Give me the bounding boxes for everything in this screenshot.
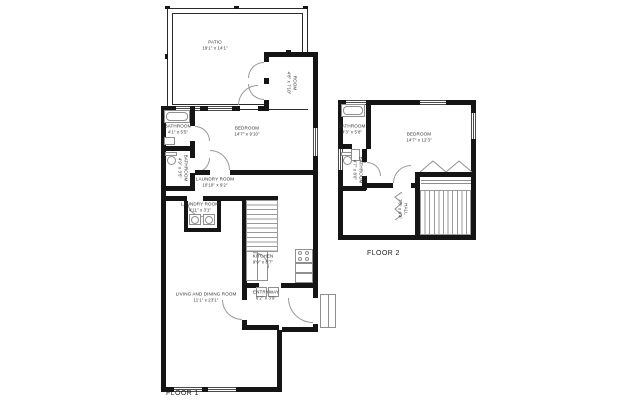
wall-segment xyxy=(281,283,313,288)
room-label-bathroom: BATHROOM 4'1" x 5'5" xyxy=(165,123,192,134)
room-dims: 4'7" x 8'6" xyxy=(352,157,358,184)
room-name: BEDROOM xyxy=(406,131,431,137)
wall-segment xyxy=(338,235,476,240)
room-dims: 4'3" x 5'8" xyxy=(339,129,366,135)
stove-burner xyxy=(298,251,302,255)
room-dims: 14'7" x 12'3" xyxy=(406,137,431,143)
room-label-side-room: ROOM 4'8" x 7'10" xyxy=(286,72,297,95)
closet-bifold-doors xyxy=(420,160,472,172)
patio-corner-tick xyxy=(165,54,168,59)
room-dims: 7'8" x 6'4" xyxy=(397,199,403,219)
room-dims: 14'7" x 9'10" xyxy=(234,131,259,137)
room-dims: 6'2" x 3'9" xyxy=(253,295,279,301)
room-label-living-dining: LIVING AND DINING ROOM 11'1" x 23'1" xyxy=(176,291,237,302)
room-dims: 4'1" x 5'5" xyxy=(165,129,192,135)
wall-segment xyxy=(338,144,352,149)
stove-burner xyxy=(305,251,309,255)
wall-segment xyxy=(366,100,371,149)
room-name: LAUNDRY ROOM xyxy=(181,201,219,207)
washer-drum xyxy=(191,216,199,224)
door-arc xyxy=(210,150,230,170)
room-dims: 10'10" x 9'2" xyxy=(196,182,234,188)
wall-segment xyxy=(264,52,318,57)
sink-vanity xyxy=(164,137,175,145)
wall-segment xyxy=(230,170,318,175)
room-name: BATHROOM xyxy=(165,123,192,129)
wall-segment xyxy=(277,330,282,392)
room-label-bedroom: BEDROOM 14'7" x 12'3" xyxy=(406,131,431,142)
wall-segment xyxy=(236,387,282,392)
dryer-drum xyxy=(205,216,213,224)
room-name: BEDROOM xyxy=(234,125,259,131)
stove-burner xyxy=(305,257,309,261)
wall-segment xyxy=(471,100,476,113)
room-dims: 11'1" x 23'1" xyxy=(176,297,237,303)
wall-segment xyxy=(184,228,221,232)
stairs xyxy=(420,190,471,235)
door-arc xyxy=(393,165,411,183)
floor1-caption: FLOOR 1 xyxy=(166,390,199,397)
window xyxy=(313,128,318,156)
room-dims: 4'11" x 3'1" xyxy=(181,207,219,213)
room-label-kitchen: KITCHEN 9'9" x 8'7" xyxy=(253,253,274,264)
wall-segment xyxy=(200,106,208,111)
stairs xyxy=(246,200,278,252)
front-door-arc xyxy=(288,298,313,323)
room-name: KITCHEN xyxy=(253,253,274,259)
room-label-bedroom: BEDROOM 14'7" x 9'10" xyxy=(234,125,259,136)
floor2-caption: FLOOR 2 xyxy=(367,250,400,257)
stove-burner xyxy=(298,257,302,261)
stoop-step-line xyxy=(328,294,329,328)
window xyxy=(420,100,446,105)
window xyxy=(208,106,232,111)
wall-segment xyxy=(195,170,210,175)
room-name: BATHROOM xyxy=(339,123,366,129)
toilet-bowl xyxy=(167,156,176,165)
wall-segment xyxy=(366,100,420,105)
door-arc xyxy=(367,162,381,176)
room-name: ENTRYWAY xyxy=(253,289,279,295)
bathtub-basin xyxy=(166,112,188,121)
wall-segment xyxy=(264,52,269,62)
closet-shelf-line xyxy=(421,183,471,184)
wall-segment xyxy=(232,106,240,111)
wall-segment xyxy=(313,156,318,298)
room-name: BATHROOM xyxy=(183,155,189,182)
patio-corner-tick xyxy=(165,6,170,9)
wall-segment xyxy=(282,327,318,332)
patio-corner-tick xyxy=(303,6,308,9)
room-dims: 9'9" x 8'7" xyxy=(253,259,274,265)
room-name: BATHROOM xyxy=(358,157,364,184)
room-label-patio: PATIO 19'1" x 14'1" xyxy=(202,39,227,50)
wall-segment xyxy=(242,325,279,330)
wall-segment xyxy=(338,170,343,240)
wall-segment xyxy=(264,78,269,84)
wall-segment xyxy=(161,186,195,191)
wall-segment xyxy=(419,172,476,177)
floorplan-canvas: PATIO 19'1" x 14'1" ROOM 4'8" x 7'10" BA… xyxy=(0,0,640,412)
room-label-bathroom: BATHROOM 4'3" x 5'8" xyxy=(339,123,366,134)
bathtub-basin xyxy=(343,106,363,115)
room-name: HALL xyxy=(403,199,409,219)
room-dims: 4'9" x 3'5" xyxy=(177,155,183,182)
wall-segment xyxy=(258,106,269,111)
door-arc xyxy=(195,126,210,141)
room-label-laundry-room: LAUNDRY ROOM 10'10" x 9'2" xyxy=(196,176,234,187)
wall-segment xyxy=(366,183,393,188)
room-name: LIVING AND DINING ROOM xyxy=(176,291,237,297)
room-dims: 19'1" x 14'1" xyxy=(202,45,227,51)
room-label-hall: HALL 7'8" x 6'4" xyxy=(397,199,408,219)
refrigerator xyxy=(295,273,313,283)
wall-segment xyxy=(313,52,318,128)
wall-segment xyxy=(471,139,476,240)
room-label-laundry-room-2: LAUNDRY ROOM 4'11" x 3'1" xyxy=(181,201,219,212)
patio-corner-tick xyxy=(234,6,239,9)
closet-shelf-line xyxy=(421,180,471,181)
wall-segment xyxy=(161,146,195,151)
window xyxy=(471,113,476,139)
room-label-entryway: ENTRYWAY 6'2" x 3'9" xyxy=(253,289,279,300)
room-name: ROOM xyxy=(292,72,298,95)
room-label-bathroom2: BATHROOM 4'9" x 3'5" xyxy=(177,155,188,182)
kitchen-appliance xyxy=(295,263,313,273)
patio-corner-tick xyxy=(286,50,291,53)
wall-segment xyxy=(338,186,366,191)
window xyxy=(208,387,236,392)
room-name: LAUNDRY ROOM xyxy=(196,176,234,182)
room-dims: 4'8" x 7'10" xyxy=(286,72,292,95)
room-label-bathroom2: BATHROOM 4'7" x 8'6" xyxy=(352,157,363,184)
door-arc xyxy=(222,300,242,320)
